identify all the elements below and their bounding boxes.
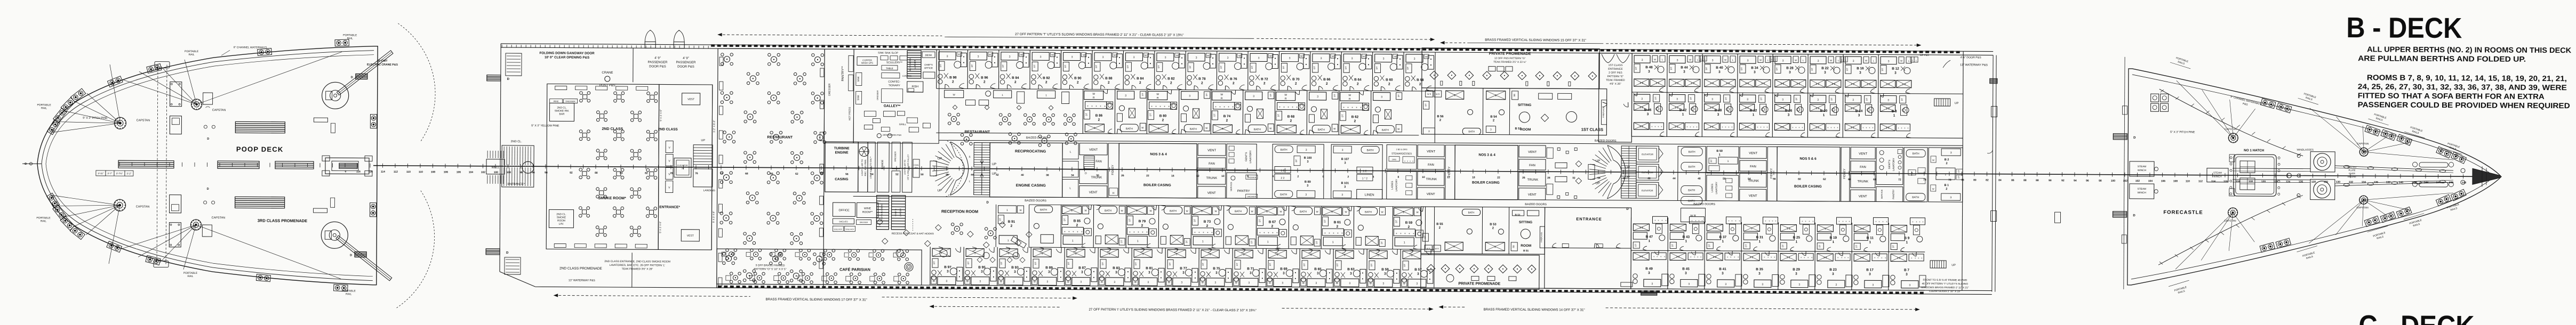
svg-text:LAVATORY: LAVATORY	[1395, 179, 1398, 191]
svg-text:CHEF'S: CHEF'S	[924, 63, 933, 66]
svg-text:1 2: 1 2	[1787, 228, 1790, 230]
svg-text:BATH: BATH	[1468, 211, 1475, 214]
svg-text:3: 3	[947, 55, 948, 58]
svg-text:B 31: B 31	[1756, 235, 1764, 239]
svg-text:+: +	[1215, 105, 1217, 109]
svg-text:FRONT TO S.R.'S AT FRAME 46 F: FRONT TO S.R.'S AT FRAME 46 FWD	[1923, 279, 1967, 282]
svg-text:1: 1	[1758, 240, 1761, 243]
svg-text:3: 3	[1647, 112, 1649, 116]
svg-text:108: 108	[431, 170, 436, 174]
svg-text:3: 3	[1189, 95, 1190, 98]
svg-text:26: 26	[1121, 174, 1124, 177]
svg-text:+: +	[1841, 256, 1843, 259]
svg-text:DT: DT	[1423, 235, 1426, 239]
svg-text:NOS 5 & 6: NOS 5 & 6	[1799, 157, 1817, 161]
svg-text:3: 3	[1214, 281, 1216, 285]
svg-text:3: 3	[1683, 70, 1685, 74]
svg-text:+: +	[1916, 221, 1917, 223]
svg-text:3: 3	[1349, 282, 1350, 285]
svg-text:CAPSTAN: CAPSTAN	[2225, 128, 2237, 131]
svg-text:1 2: 1 2	[1851, 126, 1854, 129]
svg-text:+: +	[1838, 220, 1840, 223]
svg-text:ELEVATOR: ELEVATOR	[1642, 189, 1653, 192]
svg-text:CAPSTAN: CAPSTAN	[212, 216, 226, 220]
svg-text:3: 3	[1688, 283, 1690, 286]
svg-text:BRASS FRAMED VERTICAL SLIDI: BRASS FRAMED VERTICAL SLIDING WINDOWS 17…	[766, 298, 867, 302]
svg-text:112: 112	[394, 170, 398, 174]
svg-text:2: 2	[1045, 80, 1047, 84]
svg-text:+: +	[1651, 125, 1653, 128]
svg-text:BAIZED DOORS: BAIZED DOORS	[1026, 136, 1048, 140]
svg-text:OVER: OVER	[2349, 172, 2355, 175]
svg-text:+: +	[1654, 219, 1656, 222]
svg-text:3: 3	[1114, 281, 1115, 284]
svg-text:3: 3	[1754, 70, 1756, 74]
svg-text:1: 1	[1201, 210, 1203, 213]
svg-text:B 98: B 98	[949, 76, 957, 79]
svg-text:PASSENGER: PASSENGER	[676, 61, 697, 64]
svg-text:3: 3	[1081, 271, 1083, 274]
svg-text:+: +	[1885, 257, 1886, 259]
svg-text:PLATE: PLATE	[2348, 169, 2355, 172]
svg-text:RAIL: RAIL	[41, 220, 46, 223]
svg-text:3: 3	[946, 280, 947, 283]
svg-text:2: 2	[1290, 119, 1292, 123]
svg-text:3: 3	[1718, 70, 1721, 74]
svg-text:48: 48	[1698, 177, 1701, 181]
svg-text:2: 2	[1946, 162, 1948, 165]
svg-text:1: 1	[1310, 254, 1312, 257]
svg-text:B 68: B 68	[1287, 115, 1295, 119]
svg-text:+: +	[1658, 219, 1659, 222]
svg-text:SERVICE: SERVICE	[1881, 189, 1883, 199]
svg-text:DT: DT	[1846, 68, 1849, 71]
svg-text:PANTRY: PANTRY	[1237, 190, 1250, 193]
svg-text:DRESSER: DRESSER	[860, 221, 868, 223]
svg-text:BATH: BATH	[1126, 127, 1133, 131]
svg-text:62: 62	[1823, 178, 1826, 181]
svg-text:VENT: VENT	[1749, 194, 1757, 198]
svg-text:W: W	[1020, 209, 1022, 212]
svg-text:BATH: BATH	[1281, 149, 1287, 152]
svg-text:4'-6" DOOR P&S: 4'-6" DOOR P&S	[1960, 56, 1981, 59]
svg-text:BATH: BATH	[1040, 208, 1047, 212]
svg-text:B 89: B 89	[1305, 181, 1311, 184]
svg-text:56: 56	[845, 173, 849, 176]
svg-text:UP: UP	[992, 163, 996, 166]
svg-text:8" CHANNEL WATERWAYS: 8" CHANNEL WATERWAYS	[234, 46, 267, 49]
svg-text:BOILER CASING: BOILER CASING	[1472, 181, 1500, 184]
svg-text:BATH: BATH	[1912, 196, 1919, 199]
svg-text:5" X 3" PITCH PINE: 5" X 3" PITCH PINE	[2170, 131, 2195, 134]
svg-text:1: 1	[1007, 239, 1009, 242]
svg-text:BUTCHER'S: BUTCHER'S	[909, 58, 911, 71]
svg-text:88: 88	[595, 172, 598, 175]
svg-text:3: 3	[1824, 71, 1826, 75]
svg-text:+: +	[1802, 126, 1803, 129]
svg-text:100: 100	[507, 171, 511, 174]
svg-text:+: +	[1100, 105, 1101, 108]
svg-text:1: 1	[1266, 210, 1268, 213]
svg-text:STEAM: STEAM	[2138, 165, 2147, 168]
svg-text:D: D	[1771, 59, 1772, 61]
svg-text:LADIES: LADIES	[1711, 184, 1714, 192]
svg-text:ENGINE CASING: ENGINE CASING	[1016, 184, 1046, 188]
svg-text:LIGHT & AIR TO: LIGHT & AIR TO	[861, 159, 863, 176]
svg-text:RECESS FOR COAT & HAT HOOKS: RECESS FOR COAT & HAT HOOKS	[892, 232, 934, 235]
svg-text:DT: DT	[1397, 94, 1400, 97]
svg-text:OFFICE: OFFICE	[924, 67, 933, 69]
svg-text:FAN: FAN	[1095, 160, 1102, 164]
svg-text:68: 68	[745, 172, 748, 175]
svg-text:3: 3	[1909, 284, 1910, 287]
svg-text:3: 3	[1641, 97, 1643, 101]
svg-text:FOLDING DOWN GANGWAY DOOR: FOLDING DOWN GANGWAY DOOR	[540, 51, 595, 55]
svg-text:+: +	[1400, 232, 1402, 235]
svg-text:B 83: B 83	[1113, 266, 1120, 270]
svg-text:22: 22	[1497, 176, 1500, 180]
svg-text:B 76: B 76	[1230, 77, 1237, 81]
svg-text:ENTRANCE: ENTRANCE	[1576, 216, 1602, 221]
svg-text:W: W	[1083, 54, 1085, 56]
svg-text:L: L	[1845, 59, 1846, 61]
svg-text:144: 144	[2424, 181, 2429, 184]
svg-text:+: +	[1886, 221, 1887, 223]
svg-text:DT: DT	[1202, 263, 1204, 266]
svg-text:3: 3	[1307, 160, 1309, 164]
svg-text:1: 1	[1403, 211, 1404, 214]
svg-text:TABLE: TABLE	[886, 67, 893, 70]
svg-text:50: 50	[1723, 177, 1726, 181]
svg-text:3: 3	[947, 270, 949, 273]
svg-text:+: +	[1138, 231, 1139, 234]
svg-text:3: 3	[1317, 95, 1318, 99]
svg-text:TIONARY: TIONARY	[889, 84, 901, 87]
svg-text:R: R	[1157, 96, 1159, 100]
svg-text:RAIL: RAIL	[346, 292, 351, 296]
svg-text:DT: DT	[1269, 93, 1272, 96]
svg-text:NOS 3 & 4: NOS 3 & 4	[1478, 153, 1495, 157]
svg-text:2: 2	[1347, 175, 1349, 178]
svg-text:44: 44	[1673, 177, 1676, 180]
svg-text:1: 1	[1727, 160, 1729, 163]
svg-text:B 28: B 28	[1786, 67, 1794, 70]
svg-text:138: 138	[2386, 181, 2391, 184]
svg-text:2: 2	[983, 80, 986, 84]
svg-text:+: +	[1700, 256, 1702, 258]
svg-text:B 55: B 55	[1436, 223, 1443, 226]
svg-text:FIDLEY: FIDLEY	[1448, 166, 1451, 177]
svg-text:+: +	[1849, 220, 1850, 223]
svg-text:1: 1	[1823, 113, 1825, 117]
svg-text:B 107: B 107	[1341, 158, 1349, 161]
svg-text:1: 1	[1719, 153, 1721, 157]
svg-text:D: D	[1085, 172, 1087, 175]
svg-text:RAIL: RAIL	[187, 275, 193, 278]
svg-text:+: +	[1146, 231, 1148, 234]
svg-text:1: 1	[974, 252, 976, 255]
svg-text:+: +	[1324, 232, 1326, 235]
svg-text:3: 3	[1950, 151, 1952, 155]
svg-text:+: +	[1095, 105, 1097, 108]
svg-text:+: +	[1228, 105, 1229, 109]
svg-text:PRIVATE PROMENADE: PRIVATE PROMENADE	[1458, 281, 1500, 286]
svg-text:106: 106	[457, 170, 461, 174]
svg-text:B 66: B 66	[1323, 78, 1331, 82]
svg-text:W: W	[1865, 59, 1867, 62]
svg-text:1: 1	[1075, 253, 1077, 256]
svg-text:1 2: 1 2	[1886, 108, 1890, 110]
svg-text:DT: DT	[1811, 68, 1813, 71]
svg-text:FAN: FAN	[1428, 164, 1434, 167]
svg-text:DT: DT	[1635, 67, 1637, 70]
svg-text:+: +	[1739, 220, 1740, 222]
svg-text:PATTERN "O" 5' 10" X 3' 5": PATTERN "O" 5' 10" X 3' 5"	[754, 267, 786, 271]
svg-text:+: +	[1901, 127, 1902, 129]
svg-text:DT: DT	[1690, 96, 1692, 100]
svg-text:B 81: B 81	[1146, 266, 1153, 270]
svg-text:B 86: B 86	[1095, 114, 1103, 118]
svg-text:B 67: B 67	[1269, 220, 1276, 224]
svg-text:B 58: B 58	[1417, 78, 1424, 82]
svg-text:1ST CLASS: 1ST CLASS	[1609, 64, 1623, 67]
svg-text:+: +	[1159, 105, 1161, 108]
svg-text:DT: DT	[1213, 113, 1215, 117]
svg-text:116: 116	[369, 170, 373, 174]
svg-text:VENT: VENT	[1528, 193, 1537, 197]
svg-text:+: +	[1847, 256, 1849, 259]
svg-text:+: +	[1341, 232, 1343, 235]
svg-text:3: 3	[1344, 185, 1346, 189]
svg-text:W: W	[1284, 94, 1287, 97]
svg-text:DT: DT	[1705, 67, 1708, 70]
svg-text:3: 3	[979, 280, 981, 283]
svg-text:UP: UP	[1955, 102, 1959, 105]
svg-text:DT: DT	[1185, 240, 1188, 243]
svg-text:1 2: 1 2	[1639, 125, 1643, 128]
svg-text:3: 3	[1712, 59, 1714, 62]
svg-text:L: L	[1705, 59, 1706, 61]
svg-text:116: 116	[356, 170, 361, 173]
svg-text:5" X 3" PITCH PINE: 5" X 3" PITCH PINE	[83, 117, 108, 120]
svg-text:+: +	[1104, 105, 1106, 108]
svg-text:W: W	[1156, 93, 1159, 96]
svg-text:3: 3	[1351, 57, 1353, 60]
svg-text:78: 78	[1961, 178, 1964, 182]
svg-text:W: W	[1114, 54, 1116, 56]
svg-text:76: 76	[695, 172, 698, 175]
svg-text:104: 104	[469, 171, 474, 174]
svg-text:3: 3	[1853, 60, 1854, 63]
svg-text:+: +	[1877, 256, 1879, 259]
svg-text:3: 3	[1009, 55, 1011, 59]
svg-text:W: W	[1900, 60, 1902, 62]
svg-text:3: 3	[1344, 161, 1346, 165]
svg-text:2: 2	[1108, 81, 1110, 85]
svg-text:1 2: 1 2	[1902, 83, 1906, 86]
svg-text:58: 58	[820, 173, 823, 176]
svg-text:1 2: 1 2	[1639, 226, 1643, 229]
svg-text:3: 3	[1762, 283, 1763, 286]
svg-text:W: W	[1932, 188, 1934, 190]
svg-text:DRESSER: DRESSER	[1247, 196, 1256, 198]
svg-text:3: 3	[1342, 149, 1343, 152]
svg-text:DT: DT	[1189, 65, 1191, 68]
svg-text:DT: DT	[1745, 244, 1747, 247]
svg-text:CAPSTAN: CAPSTAN	[137, 119, 150, 122]
svg-text:3: 3	[1888, 60, 1890, 63]
svg-text:+: +	[1911, 257, 1913, 259]
svg-text:+: +	[1396, 232, 1397, 235]
svg-text:1 2: 1 2	[1745, 107, 1749, 109]
svg-text:2ND CL.: 2ND CL.	[511, 140, 523, 143]
svg-text:1 2: 1 2	[1710, 107, 1714, 109]
svg-text:R: R	[1349, 97, 1351, 101]
svg-text:3: 3	[981, 270, 983, 274]
svg-text:CAPSTAN: CAPSTAN	[2356, 206, 2369, 209]
svg-text:DT: DT	[1403, 264, 1406, 267]
svg-text:BATH: BATH	[1190, 128, 1197, 131]
svg-text:BATH: BATH	[1254, 128, 1261, 131]
svg-text:98: 98	[519, 171, 523, 174]
svg-text:B 80: B 80	[1159, 114, 1167, 118]
svg-text:106: 106	[2161, 180, 2166, 183]
svg-text:WINE RACK: WINE RACK	[834, 228, 842, 230]
svg-text:+: +	[1731, 220, 1733, 222]
svg-text:32: 32	[1572, 176, 1575, 180]
svg-text:DT: DT	[1345, 66, 1347, 69]
svg-text:TRUNK: TRUNK	[1206, 177, 1218, 180]
svg-text:DT: DT	[1370, 263, 1373, 266]
svg-text:VENT: VENT	[1089, 191, 1098, 194]
svg-text:DT: DT	[1258, 219, 1261, 222]
svg-text:B 53: B 53	[1490, 223, 1497, 226]
svg-text:3: 3	[1181, 281, 1182, 285]
svg-text:3: 3	[1782, 98, 1783, 101]
svg-text:1 2: 1 2	[1750, 256, 1754, 258]
svg-text:2: 2	[1388, 83, 1390, 86]
svg-text:2: 2	[1326, 82, 1328, 86]
svg-text:28: 28	[1547, 176, 1550, 180]
svg-text:RECIPROCATING: RECIPROCATING	[1015, 150, 1046, 153]
svg-text:W: W	[1363, 55, 1365, 58]
svg-text:+: +	[1921, 257, 1923, 259]
svg-text:B 84: B 84	[1137, 77, 1144, 80]
svg-text:3: 3	[1648, 70, 1650, 74]
svg-text:+: +	[1807, 256, 1809, 259]
svg-text:2: 2	[1271, 224, 1274, 228]
svg-text:3: 3	[1852, 99, 1854, 102]
svg-text:22: 22	[1146, 174, 1149, 177]
svg-text:+: +	[1731, 126, 1733, 128]
svg-text:W: W	[1145, 54, 1147, 56]
svg-text:B 7: B 7	[1904, 269, 1909, 272]
svg-text:H: H	[1113, 192, 1115, 195]
svg-text:2: 2	[1337, 225, 1339, 229]
svg-text:1 2: 1 2	[1780, 107, 1784, 109]
svg-text:1 2: 1 2	[1780, 126, 1784, 128]
svg-text:2: 2	[1946, 188, 1947, 191]
svg-text:DT: DT	[1134, 262, 1137, 265]
svg-text:ENGINE: ENGINE	[835, 151, 849, 155]
svg-text:3: 3	[1685, 272, 1687, 275]
svg-text:+: +	[1661, 125, 1662, 128]
svg-text:W: W	[1654, 58, 1656, 61]
svg-text:+: +	[1811, 256, 1813, 259]
svg-text:WINCH: WINCH	[2213, 175, 2222, 178]
svg-text:+: +	[1696, 126, 1698, 128]
svg-text:1: 1	[1906, 241, 1908, 245]
svg-text:1 2: 1 2	[1815, 107, 1819, 110]
svg-text:BATH: BATH	[1365, 210, 1372, 214]
svg-text:1: 1	[1685, 240, 1687, 243]
svg-text:1 2: 1 2	[1745, 126, 1749, 128]
svg-text:+: +	[1296, 106, 1298, 109]
svg-text:50 CWT: 50 CWT	[377, 60, 388, 63]
svg-text:+: +	[1232, 105, 1234, 109]
svg-text:B 97: B 97	[944, 265, 951, 269]
svg-text:3'-7½": 3'-7½"	[116, 172, 123, 175]
svg-text:3: 3	[1306, 149, 1307, 152]
svg-text:34: 34	[1597, 177, 1601, 180]
svg-text:10: 10	[1221, 175, 1225, 178]
svg-text:3: 3	[1381, 96, 1382, 99]
svg-text:CAPSTAN: CAPSTAN	[212, 109, 226, 112]
svg-text:3: 3	[1490, 128, 1492, 132]
svg-text:+: +	[1413, 232, 1414, 235]
svg-text:1 2: 1 2	[1851, 107, 1854, 110]
svg-text:B 63: B 63	[1347, 267, 1355, 271]
svg-text:B 49: B 49	[1645, 267, 1653, 271]
svg-text:TRUNK: TRUNK	[1858, 180, 1869, 183]
svg-text:+: +	[1722, 126, 1723, 128]
svg-text:BATH: BATH	[1280, 193, 1287, 197]
svg-text:R: R	[1285, 97, 1287, 101]
svg-text:BATH: BATH	[1300, 210, 1307, 214]
svg-text:+: +	[1223, 105, 1225, 109]
svg-text:VENT: VENT	[1528, 151, 1537, 154]
svg-text:3: 3	[1040, 55, 1042, 59]
svg-text:+: +	[1091, 105, 1093, 108]
svg-text:10' 0" CLEAR OPENING P&S: 10' 0" CLEAR OPENING P&S	[545, 55, 589, 59]
svg-text:ROOM: ROOM	[1520, 128, 1531, 132]
svg-text:B 87: B 87	[1078, 266, 1086, 270]
svg-text:WINDLASSES: WINDLASSES	[2297, 149, 2313, 152]
svg-text:LAV.: LAV.	[559, 222, 564, 225]
svg-text:+: +	[1693, 126, 1694, 128]
svg-text:DT: DT	[1002, 64, 1004, 68]
svg-text:1: 1	[1109, 253, 1110, 256]
svg-text:B 29: B 29	[1793, 268, 1800, 272]
svg-text:1 2: 1 2	[1639, 255, 1643, 258]
svg-text:DRS: DRS	[1392, 159, 1396, 161]
svg-text:DT: DT	[1205, 93, 1208, 96]
svg-text:DT: DT	[1063, 218, 1066, 221]
svg-text:3: 3	[1341, 193, 1343, 197]
svg-text:FIREPLACE: FIREPLACE	[1540, 232, 1542, 242]
svg-text:ROOM: ROOM	[1521, 244, 1531, 248]
svg-text:1: 1	[1042, 252, 1043, 255]
svg-text:1 2: 1 2	[1710, 126, 1714, 128]
svg-text:2 2: 2 2	[1281, 177, 1284, 180]
svg-text:L: L	[1916, 60, 1917, 62]
svg-text:DRESSER: DRESSER	[828, 83, 831, 96]
svg-text:DT: DT	[1855, 245, 1858, 248]
svg-text:+: +	[1725, 126, 1726, 128]
svg-text:DT: DT	[1781, 244, 1784, 247]
svg-text:3: 3	[1747, 59, 1749, 62]
svg-text:1: 1	[1344, 254, 1346, 257]
